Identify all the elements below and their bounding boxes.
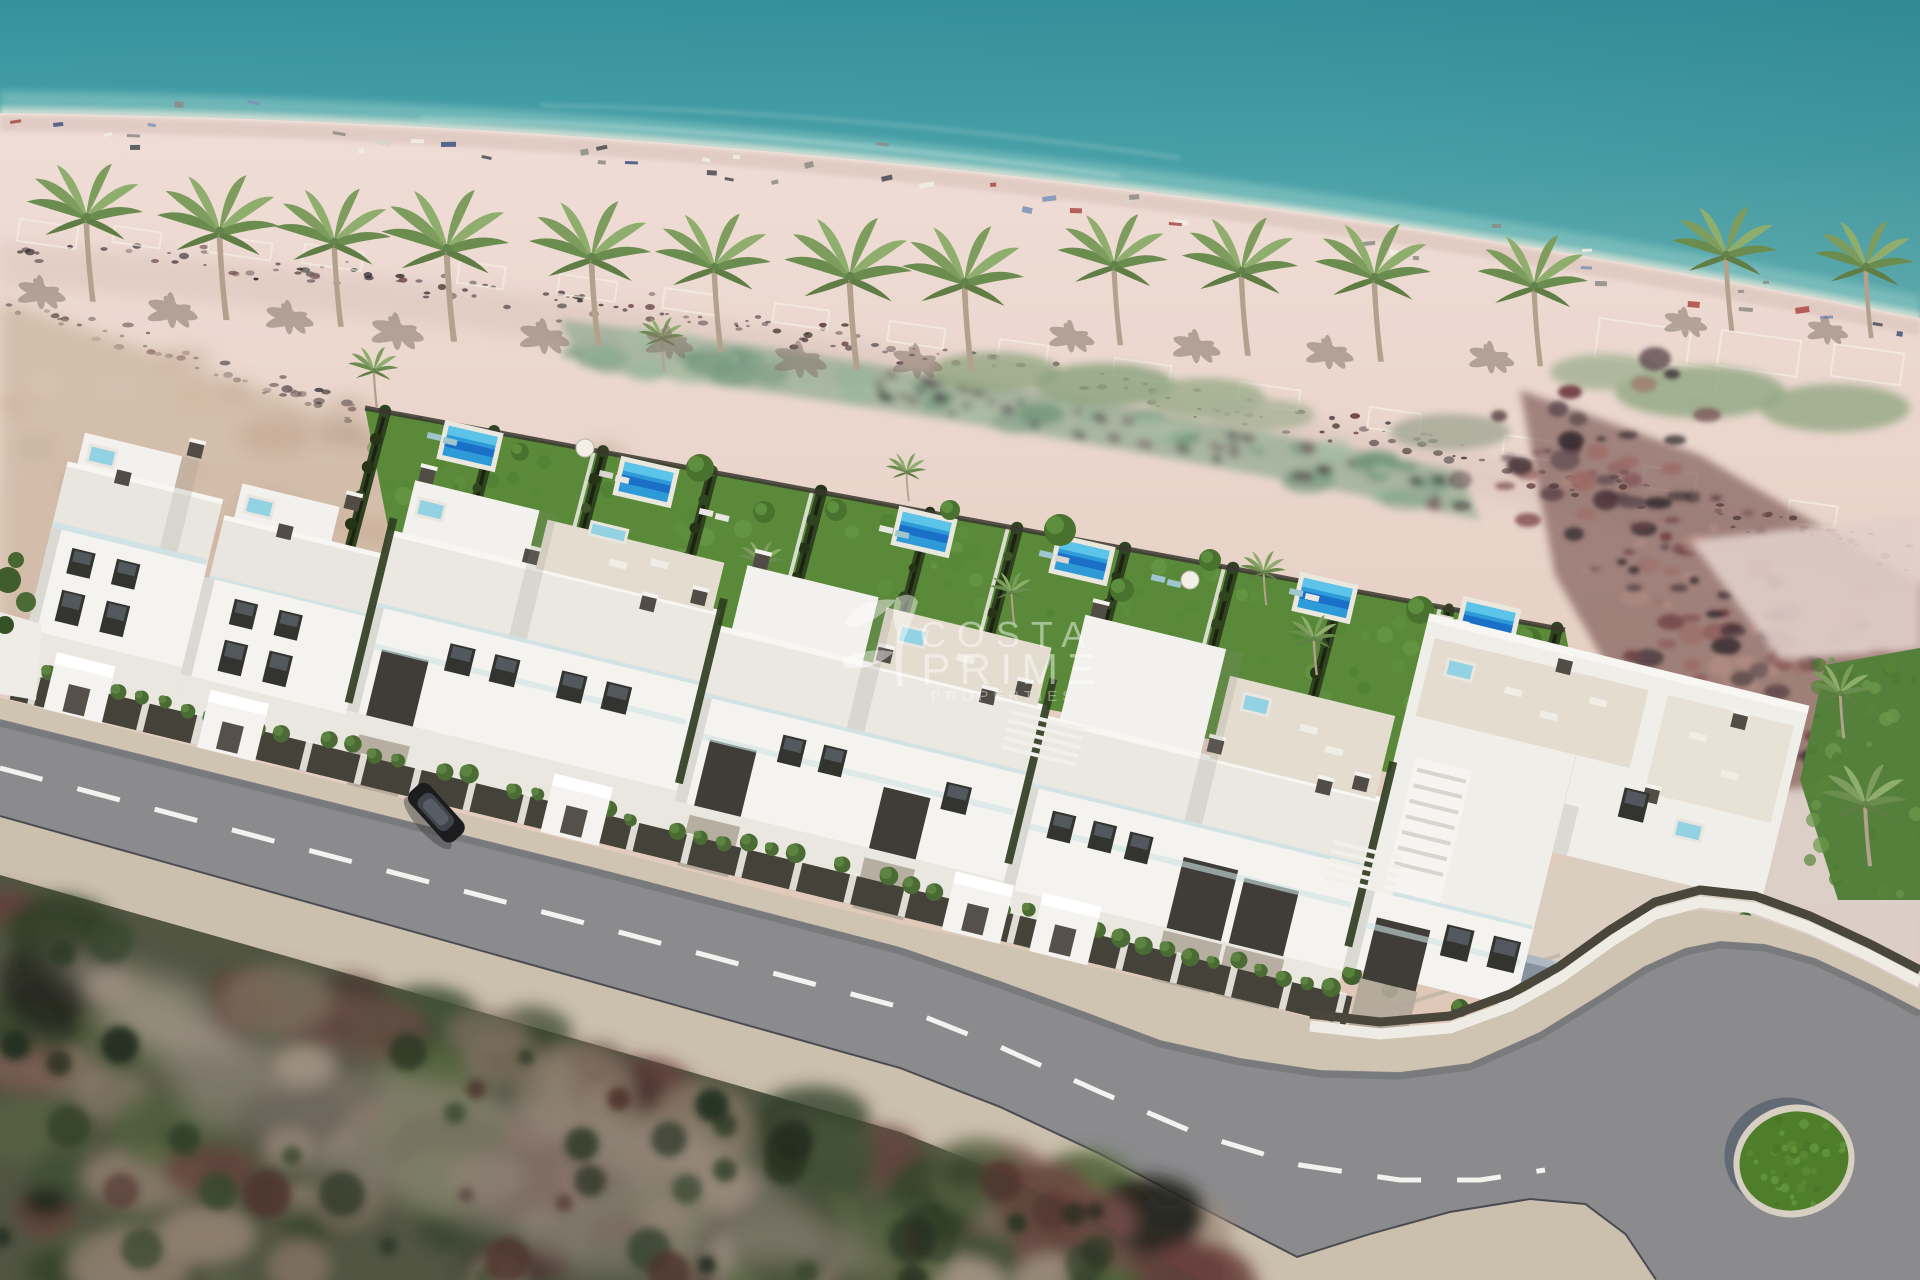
svg-text:PROPERTIES: PROPERTIES bbox=[931, 688, 1077, 705]
svg-text:PRIMΞ: PRIMΞ bbox=[921, 645, 1105, 694]
